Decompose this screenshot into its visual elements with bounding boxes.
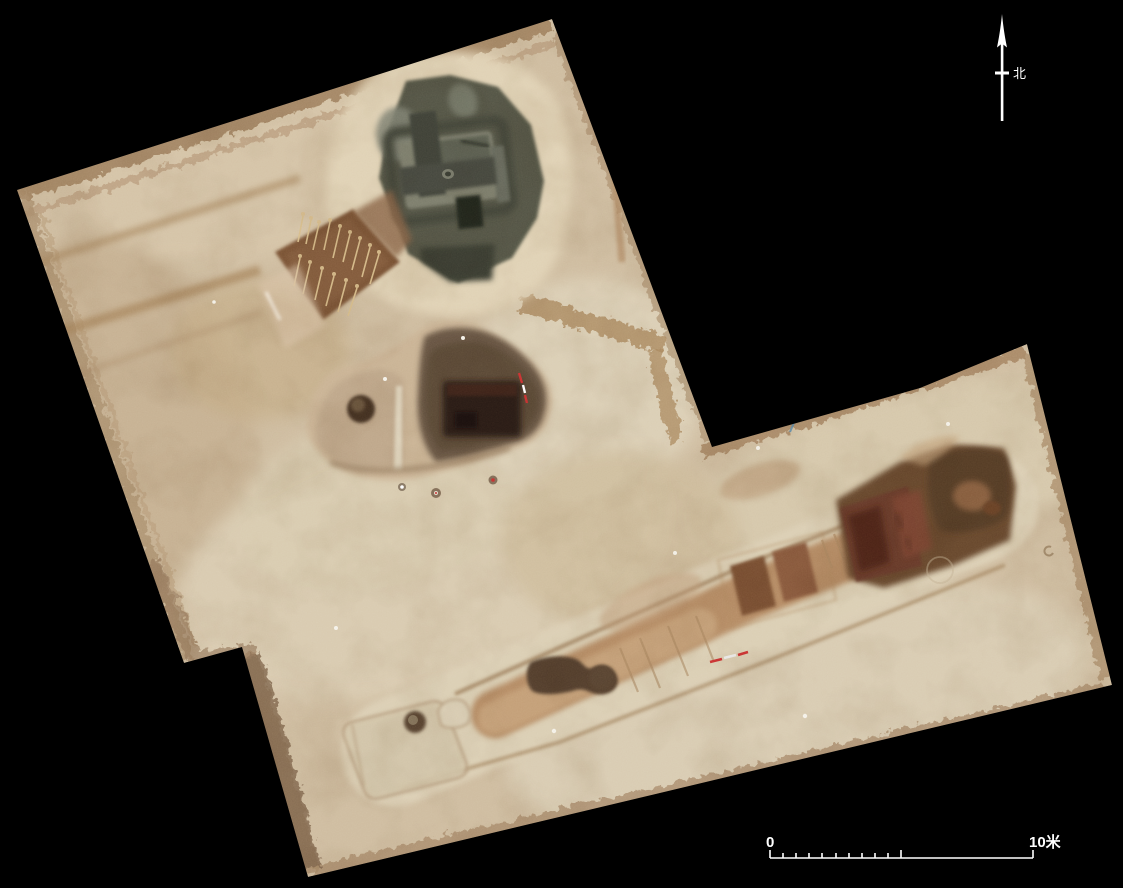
svg-text:0: 0 <box>766 834 774 851</box>
svg-text:10米: 10米 <box>1029 833 1062 851</box>
svg-text:北: 北 <box>1013 66 1026 81</box>
